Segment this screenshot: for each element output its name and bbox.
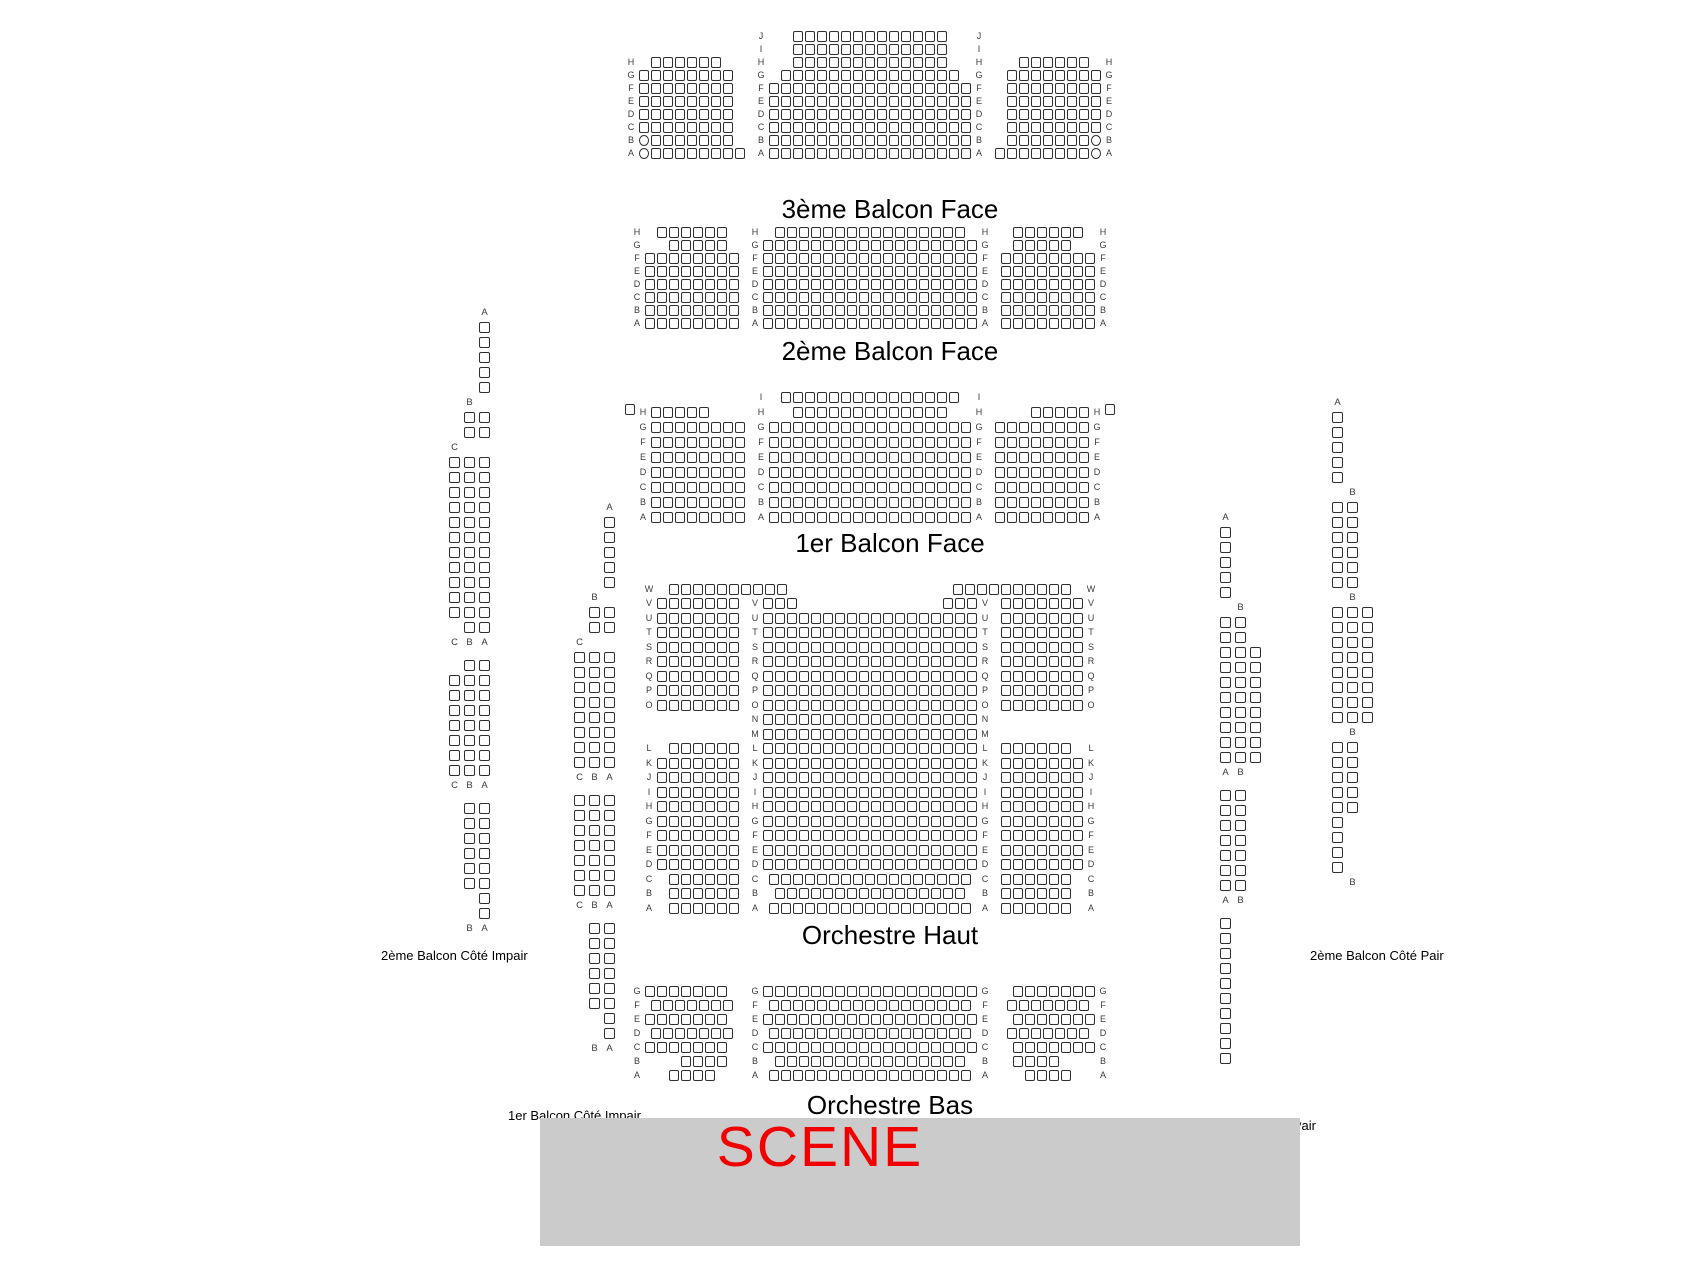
seat[interactable]: [937, 452, 947, 463]
seat[interactable]: [1049, 888, 1059, 899]
seat[interactable]: [479, 622, 490, 633]
seat[interactable]: [1235, 662, 1246, 673]
seat[interactable]: [799, 227, 809, 238]
seat[interactable]: [835, 845, 845, 856]
seat[interactable]: [763, 830, 773, 841]
seat[interactable]: [729, 627, 739, 638]
seat[interactable]: [841, 1028, 851, 1039]
seat[interactable]: [574, 810, 585, 821]
seat[interactable]: [705, 305, 715, 316]
seat[interactable]: [847, 986, 857, 997]
seat[interactable]: [799, 888, 809, 899]
seat[interactable]: [687, 1000, 697, 1011]
seat[interactable]: [799, 859, 809, 870]
seat[interactable]: [787, 598, 797, 609]
seat[interactable]: [1235, 722, 1246, 733]
seat[interactable]: [811, 253, 821, 264]
seat[interactable]: [865, 452, 875, 463]
seat[interactable]: [717, 700, 727, 711]
seat[interactable]: [877, 467, 887, 478]
seat[interactable]: [901, 44, 911, 55]
seat[interactable]: [729, 685, 739, 696]
seat[interactable]: [817, 512, 827, 523]
seat[interactable]: [1220, 820, 1231, 831]
seat[interactable]: [901, 122, 911, 133]
seat[interactable]: [1061, 1014, 1071, 1025]
seat[interactable]: [877, 874, 887, 885]
seat[interactable]: [1332, 412, 1343, 423]
seat[interactable]: [699, 467, 709, 478]
seat[interactable]: [817, 437, 827, 448]
seat[interactable]: [1037, 1070, 1047, 1081]
seat[interactable]: [949, 452, 959, 463]
seat[interactable]: [1037, 859, 1047, 870]
seat[interactable]: [1037, 240, 1047, 251]
seat[interactable]: [1025, 888, 1035, 899]
seat[interactable]: [967, 1042, 977, 1053]
seat[interactable]: [717, 240, 727, 251]
seat[interactable]: [589, 795, 600, 806]
seat[interactable]: [805, 96, 815, 107]
seat[interactable]: [883, 845, 893, 856]
seat[interactable]: [735, 467, 745, 478]
seat[interactable]: [669, 613, 679, 624]
seat[interactable]: [919, 613, 929, 624]
seat[interactable]: [913, 452, 923, 463]
seat[interactable]: [853, 1070, 863, 1081]
seat[interactable]: [889, 407, 899, 418]
seat[interactable]: [464, 848, 475, 859]
seat[interactable]: [1347, 757, 1358, 768]
seat[interactable]: [805, 482, 815, 493]
seat[interactable]: [835, 266, 845, 277]
seat[interactable]: [645, 253, 655, 264]
seat[interactable]: [1061, 671, 1071, 682]
seat[interactable]: [967, 758, 977, 769]
seat[interactable]: [763, 816, 773, 827]
seat[interactable]: [949, 83, 959, 94]
seat[interactable]: [835, 253, 845, 264]
seat[interactable]: [907, 758, 917, 769]
seat-round[interactable]: [639, 135, 649, 146]
seat[interactable]: [913, 96, 923, 107]
seat[interactable]: [1013, 318, 1023, 329]
seat[interactable]: [1235, 805, 1246, 816]
seat[interactable]: [711, 1028, 721, 1039]
seat[interactable]: [1067, 437, 1077, 448]
seat[interactable]: [1332, 427, 1343, 438]
seat[interactable]: [717, 859, 727, 870]
seat[interactable]: [574, 667, 585, 678]
seat[interactable]: [1025, 1042, 1035, 1053]
seat[interactable]: [949, 874, 959, 885]
seat[interactable]: [883, 714, 893, 725]
seat[interactable]: [1061, 584, 1071, 595]
seat[interactable]: [811, 729, 821, 740]
seat[interactable]: [1061, 874, 1071, 885]
seat[interactable]: [1037, 986, 1047, 997]
seat[interactable]: [723, 482, 733, 493]
seat[interactable]: [1007, 148, 1017, 159]
seat[interactable]: [479, 818, 490, 829]
seat[interactable]: [1013, 787, 1023, 798]
seat[interactable]: [895, 888, 905, 899]
seat[interactable]: [1061, 700, 1071, 711]
seat[interactable]: [901, 31, 911, 42]
seat[interactable]: [699, 407, 709, 418]
seat[interactable]: [663, 83, 673, 94]
seat[interactable]: [775, 253, 785, 264]
seat[interactable]: [841, 452, 851, 463]
seat[interactable]: [835, 642, 845, 653]
seat[interactable]: [907, 266, 917, 277]
seat[interactable]: [895, 1014, 905, 1025]
seat[interactable]: [1025, 859, 1035, 870]
seat[interactable]: [811, 758, 821, 769]
seat[interactable]: [1013, 253, 1023, 264]
seat[interactable]: [1061, 801, 1071, 812]
seat[interactable]: [681, 787, 691, 798]
seat[interactable]: [937, 109, 947, 120]
seat[interactable]: [805, 903, 815, 914]
seat[interactable]: [1025, 758, 1035, 769]
seat[interactable]: [1013, 685, 1023, 696]
seat[interactable]: [967, 714, 977, 725]
seat[interactable]: [931, 859, 941, 870]
seat[interactable]: [955, 1014, 965, 1025]
seat[interactable]: [919, 305, 929, 316]
seat[interactable]: [953, 584, 963, 595]
seat[interactable]: [1007, 497, 1017, 508]
seat[interactable]: [449, 607, 460, 618]
seat[interactable]: [793, 407, 803, 418]
seat[interactable]: [693, 627, 703, 638]
seat[interactable]: [651, 452, 661, 463]
seat[interactable]: [681, 772, 691, 783]
seat[interactable]: [955, 279, 965, 290]
seat[interactable]: [853, 96, 863, 107]
seat[interactable]: [961, 1000, 971, 1011]
seat[interactable]: [699, 512, 709, 523]
seat[interactable]: [811, 671, 821, 682]
seat[interactable]: [651, 437, 661, 448]
seat[interactable]: [604, 547, 615, 558]
seat[interactable]: [1025, 266, 1035, 277]
seat[interactable]: [895, 227, 905, 238]
seat[interactable]: [1347, 562, 1358, 573]
seat[interactable]: [769, 512, 779, 523]
seat[interactable]: [817, 452, 827, 463]
seat[interactable]: [961, 903, 971, 914]
seat[interactable]: [961, 874, 971, 885]
seat[interactable]: [1043, 482, 1053, 493]
seat[interactable]: [925, 422, 935, 433]
seat[interactable]: [1025, 613, 1035, 624]
seat[interactable]: [995, 437, 1005, 448]
seat[interactable]: [1220, 933, 1231, 944]
seat[interactable]: [889, 1000, 899, 1011]
seat[interactable]: [931, 685, 941, 696]
seat[interactable]: [847, 656, 857, 667]
seat[interactable]: [479, 803, 490, 814]
seat[interactable]: [913, 83, 923, 94]
seat[interactable]: [919, 801, 929, 812]
seat[interactable]: [1025, 279, 1035, 290]
seat[interactable]: [1235, 752, 1246, 763]
seat[interactable]: [787, 627, 797, 638]
seat[interactable]: [711, 148, 721, 159]
seat[interactable]: [859, 758, 869, 769]
seat[interactable]: [657, 227, 667, 238]
seat[interactable]: [883, 627, 893, 638]
seat[interactable]: [1347, 577, 1358, 588]
seat[interactable]: [657, 1042, 667, 1053]
seat[interactable]: [763, 292, 773, 303]
seat[interactable]: [1055, 148, 1065, 159]
seat[interactable]: [865, 1028, 875, 1039]
seat[interactable]: [889, 497, 899, 508]
seat[interactable]: [669, 772, 679, 783]
seat[interactable]: [943, 729, 953, 740]
seat[interactable]: [763, 729, 773, 740]
seat[interactable]: [925, 1028, 935, 1039]
seat[interactable]: [889, 57, 899, 68]
seat[interactable]: [823, 627, 833, 638]
seat[interactable]: [735, 452, 745, 463]
seat[interactable]: [901, 109, 911, 120]
seat[interactable]: [823, 729, 833, 740]
seat[interactable]: [853, 31, 863, 42]
seat[interactable]: [961, 148, 971, 159]
seat[interactable]: [955, 743, 965, 754]
seat[interactable]: [829, 1070, 839, 1081]
seat[interactable]: [669, 830, 679, 841]
seat[interactable]: [1007, 437, 1017, 448]
seat[interactable]: [949, 109, 959, 120]
seat[interactable]: [901, 1028, 911, 1039]
seat[interactable]: [775, 318, 785, 329]
seat[interactable]: [883, 279, 893, 290]
seat[interactable]: [889, 482, 899, 493]
seat[interactable]: [1049, 743, 1059, 754]
seat[interactable]: [1220, 1038, 1231, 1049]
seat[interactable]: [1067, 135, 1077, 146]
seat[interactable]: [1049, 279, 1059, 290]
seat[interactable]: [793, 57, 803, 68]
seat[interactable]: [1049, 801, 1059, 812]
seat[interactable]: [775, 845, 785, 856]
seat[interactable]: [853, 1000, 863, 1011]
seat[interactable]: [841, 437, 851, 448]
seat[interactable]: [1061, 816, 1071, 827]
seat[interactable]: [687, 407, 697, 418]
seat[interactable]: [574, 712, 585, 723]
seat[interactable]: [805, 452, 815, 463]
seat[interactable]: [651, 407, 661, 418]
seat[interactable]: [1067, 148, 1077, 159]
seat[interactable]: [711, 109, 721, 120]
seat[interactable]: [753, 584, 763, 595]
seat[interactable]: [1013, 1014, 1023, 1025]
seat[interactable]: [1332, 607, 1343, 618]
seat[interactable]: [723, 452, 733, 463]
seat[interactable]: [681, 266, 691, 277]
seat[interactable]: [464, 833, 475, 844]
seat[interactable]: [763, 642, 773, 653]
seat[interactable]: [449, 547, 460, 558]
seat[interactable]: [937, 1028, 947, 1039]
seat[interactable]: [1019, 83, 1029, 94]
seat[interactable]: [955, 305, 965, 316]
seat[interactable]: [705, 627, 715, 638]
seat[interactable]: [729, 642, 739, 653]
seat[interactable]: [919, 627, 929, 638]
seat[interactable]: [835, 305, 845, 316]
seat[interactable]: [464, 675, 475, 686]
seat[interactable]: [823, 772, 833, 783]
seat[interactable]: [705, 292, 715, 303]
seat[interactable]: [717, 685, 727, 696]
seat[interactable]: [1049, 671, 1059, 682]
seat[interactable]: [663, 135, 673, 146]
seat[interactable]: [717, 1056, 727, 1067]
seat[interactable]: [735, 482, 745, 493]
seat[interactable]: [699, 148, 709, 159]
seat[interactable]: [943, 758, 953, 769]
seat[interactable]: [711, 57, 721, 68]
seat[interactable]: [859, 613, 869, 624]
seat[interactable]: [1013, 986, 1023, 997]
seat[interactable]: [1025, 801, 1035, 812]
seat[interactable]: [853, 83, 863, 94]
seat-round[interactable]: [1091, 135, 1101, 146]
seat[interactable]: [681, 613, 691, 624]
seat[interactable]: [919, 253, 929, 264]
seat[interactable]: [787, 816, 797, 827]
seat[interactable]: [1061, 903, 1071, 914]
seat[interactable]: [1332, 532, 1343, 543]
seat[interactable]: [769, 497, 779, 508]
seat[interactable]: [1220, 1008, 1231, 1019]
seat[interactable]: [1079, 109, 1089, 120]
seat[interactable]: [1037, 642, 1047, 653]
seat[interactable]: [859, 845, 869, 856]
seat[interactable]: [711, 1000, 721, 1011]
seat[interactable]: [723, 122, 733, 133]
seat[interactable]: [717, 227, 727, 238]
seat[interactable]: [995, 512, 1005, 523]
seat[interactable]: [675, 437, 685, 448]
seat[interactable]: [871, 685, 881, 696]
seat[interactable]: [931, 845, 941, 856]
seat[interactable]: [589, 607, 600, 618]
seat[interactable]: [829, 44, 839, 55]
seat[interactable]: [763, 685, 773, 696]
seat[interactable]: [1031, 135, 1041, 146]
lone-seat[interactable]: [625, 404, 635, 415]
seat[interactable]: [871, 888, 881, 899]
seat[interactable]: [1031, 1028, 1041, 1039]
seat[interactable]: [1037, 830, 1047, 841]
seat[interactable]: [711, 83, 721, 94]
seat[interactable]: [775, 292, 785, 303]
seat[interactable]: [955, 888, 965, 899]
seat[interactable]: [1067, 512, 1077, 523]
seat[interactable]: [799, 1056, 809, 1067]
seat[interactable]: [1073, 227, 1083, 238]
seat[interactable]: [1049, 1042, 1059, 1053]
seat[interactable]: [1085, 266, 1095, 277]
seat[interactable]: [799, 772, 809, 783]
seat[interactable]: [847, 613, 857, 624]
seat[interactable]: [961, 96, 971, 107]
seat[interactable]: [1332, 472, 1343, 483]
seat[interactable]: [1220, 677, 1231, 688]
seat[interactable]: [1235, 677, 1246, 688]
seat[interactable]: [883, 758, 893, 769]
seat[interactable]: [937, 1000, 947, 1011]
seat[interactable]: [955, 787, 965, 798]
seat[interactable]: [657, 598, 667, 609]
seat[interactable]: [729, 671, 739, 682]
seat[interactable]: [925, 122, 935, 133]
seat[interactable]: [835, 729, 845, 740]
seat[interactable]: [1001, 787, 1011, 798]
seat[interactable]: [711, 422, 721, 433]
seat[interactable]: [913, 392, 923, 403]
seat[interactable]: [865, 482, 875, 493]
seat[interactable]: [811, 685, 821, 696]
seat[interactable]: [1067, 96, 1077, 107]
seat[interactable]: [1061, 613, 1071, 624]
seat[interactable]: [769, 96, 779, 107]
seat[interactable]: [949, 1028, 959, 1039]
seat[interactable]: [589, 825, 600, 836]
seat[interactable]: [1079, 467, 1089, 478]
seat[interactable]: [1019, 122, 1029, 133]
seat[interactable]: [883, 613, 893, 624]
seat[interactable]: [883, 292, 893, 303]
seat[interactable]: [604, 1028, 615, 1039]
seat[interactable]: [675, 109, 685, 120]
seat[interactable]: [877, 70, 887, 81]
seat[interactable]: [479, 547, 490, 558]
seat[interactable]: [871, 227, 881, 238]
seat[interactable]: [717, 671, 727, 682]
seat[interactable]: [823, 685, 833, 696]
seat[interactable]: [1055, 83, 1065, 94]
seat[interactable]: [669, 305, 679, 316]
seat[interactable]: [1049, 758, 1059, 769]
seat[interactable]: [871, 729, 881, 740]
seat[interactable]: [1061, 830, 1071, 841]
seat[interactable]: [811, 845, 821, 856]
seat[interactable]: [1250, 737, 1261, 748]
seat[interactable]: [711, 497, 721, 508]
seat[interactable]: [919, 758, 929, 769]
seat[interactable]: [931, 253, 941, 264]
seat[interactable]: [967, 801, 977, 812]
seat[interactable]: [663, 407, 673, 418]
seat[interactable]: [705, 874, 715, 885]
seat[interactable]: [841, 874, 851, 885]
seat[interactable]: [1007, 467, 1017, 478]
seat[interactable]: [919, 830, 929, 841]
seat[interactable]: [793, 44, 803, 55]
seat[interactable]: [604, 855, 615, 866]
seat[interactable]: [1073, 627, 1083, 638]
seat[interactable]: [943, 1014, 953, 1025]
